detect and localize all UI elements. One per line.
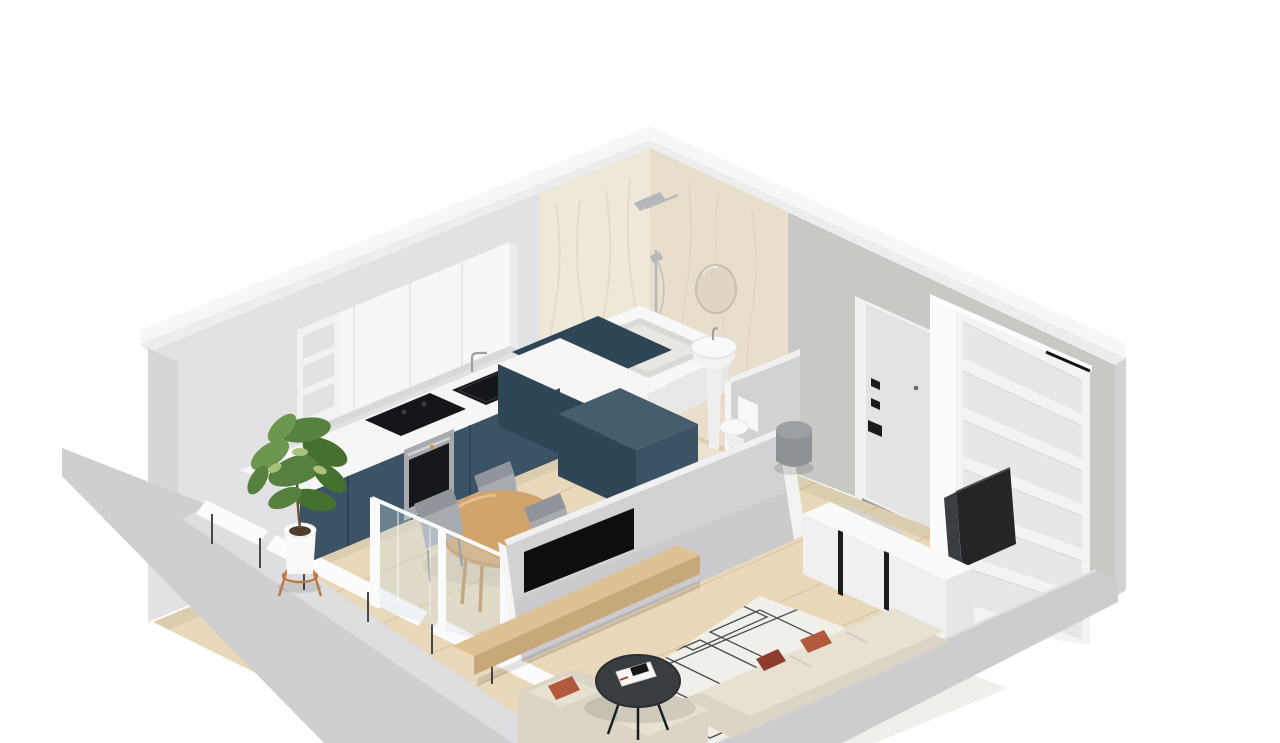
round-mirror	[696, 265, 736, 313]
sideboard-handle	[838, 530, 843, 596]
upper-cabinet-side	[510, 242, 518, 350]
sideboard-handle	[884, 551, 889, 611]
oven-indicator	[430, 445, 434, 449]
floor-plan-render	[0, 0, 1280, 743]
glass-post	[370, 497, 380, 609]
gray-pouf	[774, 421, 814, 475]
open-shelf-cubbies	[303, 323, 334, 419]
apartment-isometric-scene	[0, 0, 1280, 743]
door-peephole	[914, 386, 919, 391]
glass-post	[438, 527, 446, 637]
pouf-top	[776, 421, 812, 439]
right-wall-end-edge	[1115, 358, 1126, 597]
toilet-seat	[720, 419, 748, 435]
